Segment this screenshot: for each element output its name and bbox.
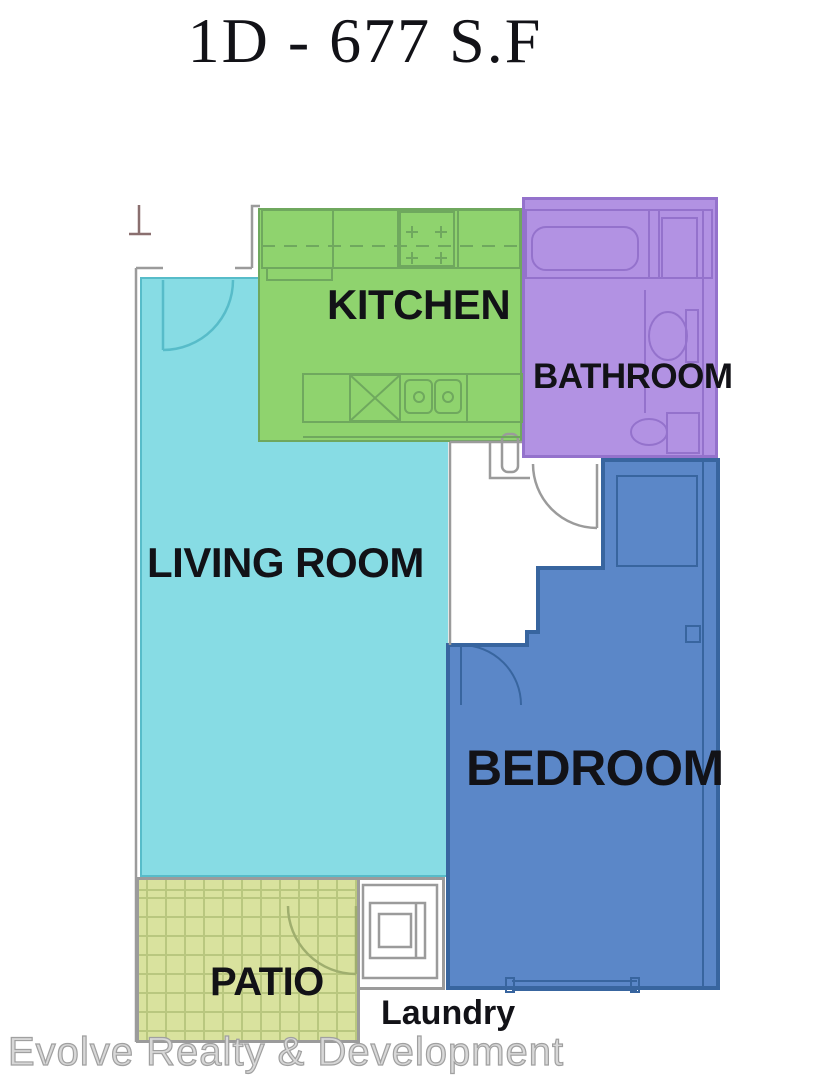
kitchen-counter	[262, 210, 520, 280]
kitchen-island	[303, 374, 522, 437]
watermark: Evolve Realty & Development	[8, 1030, 564, 1075]
room-bedroom	[448, 460, 718, 988]
floor-plan-page: 1D - 677 S.F	[0, 0, 834, 1080]
bathtub-icon	[526, 210, 712, 278]
patio-label: PATIO	[210, 962, 324, 1002]
washer-icon	[363, 885, 437, 978]
kitchen-label: KITCHEN	[327, 284, 510, 326]
wall-section-marker	[129, 205, 151, 234]
entry-door-arc	[163, 280, 233, 350]
laundry-label: Laundry	[381, 996, 515, 1030]
bedroom-label: BEDROOM	[466, 743, 724, 793]
bathroom-sink-icon	[631, 210, 703, 455]
kitchen-sink-icon	[405, 380, 461, 413]
living-room-label: LIVING ROOM	[147, 542, 424, 584]
hall-closet	[490, 434, 530, 478]
bathroom-label: BATHROOM	[533, 359, 733, 394]
stove-icon	[400, 212, 454, 266]
bathroom-door-arc	[533, 464, 597, 528]
